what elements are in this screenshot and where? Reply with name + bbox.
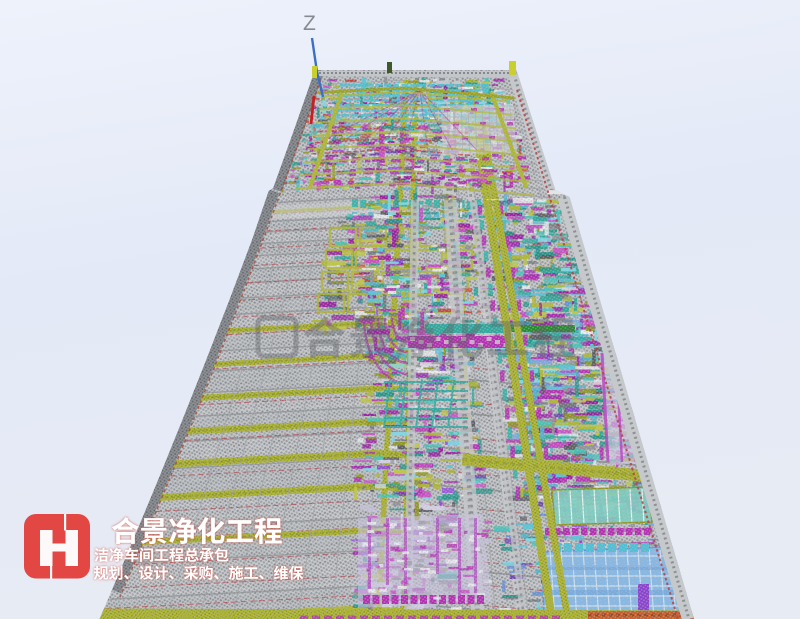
svg-text:Z: Z: [303, 12, 316, 35]
